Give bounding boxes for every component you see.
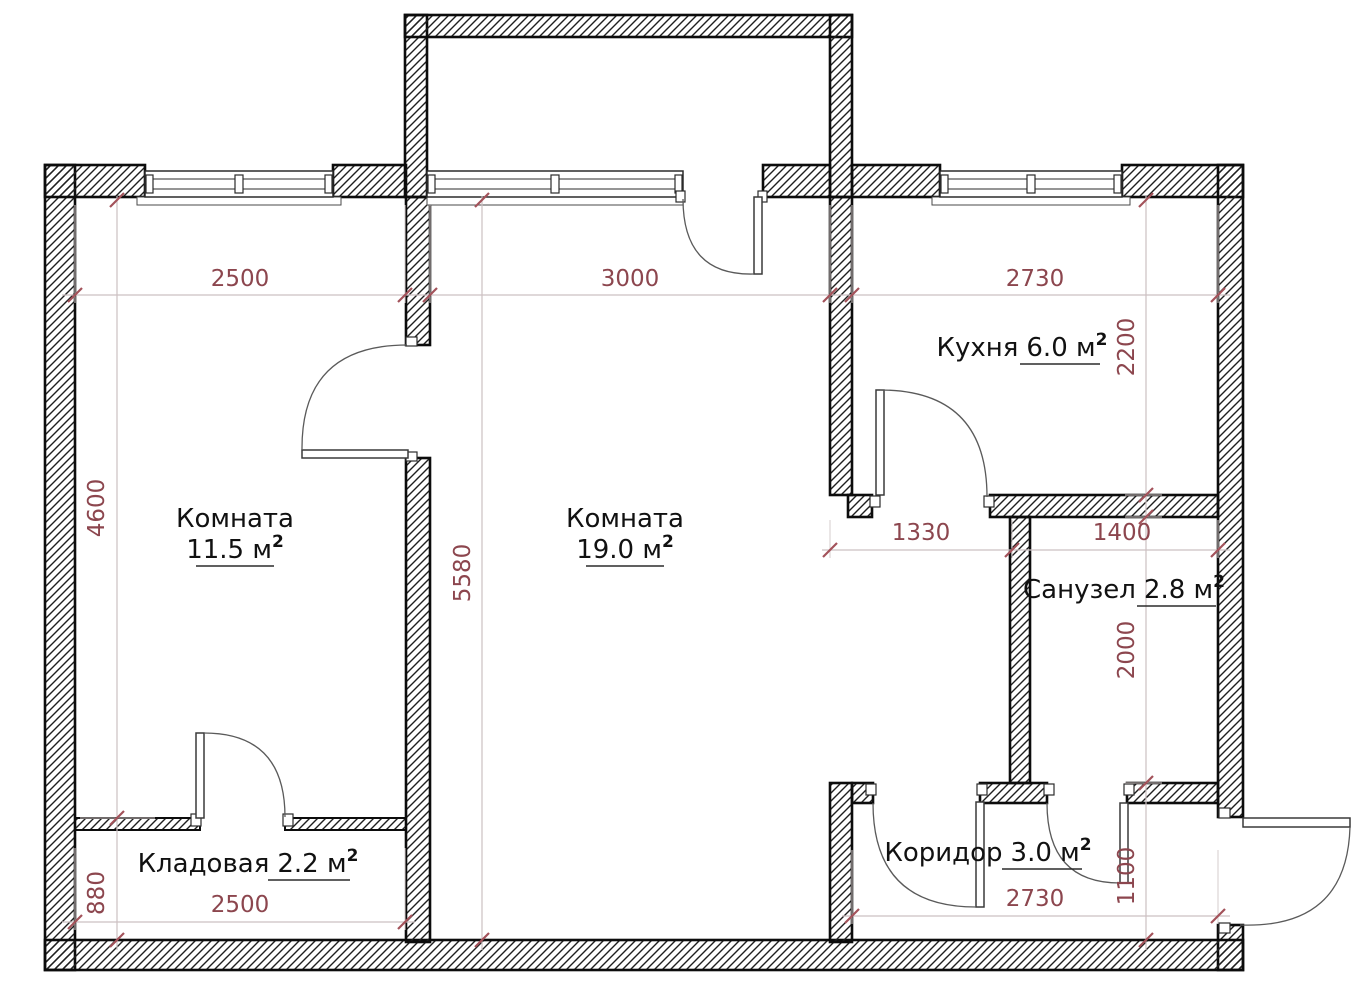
bathroom-label: Санузел2.8 м2 [1023,572,1225,605]
dim-storage-height: 880 [84,871,110,915]
kitchen-label: Кухня6.0 м2 [937,330,1108,363]
room2-area: 19.0 м2 [576,532,674,565]
dim-corridor-width: 2730 [1006,886,1065,912]
wall-outer-left [45,165,75,970]
dim-kitchen-width: 2730 [1006,266,1065,292]
wall-bathroom-left [1010,517,1030,783]
dimension-ticks [68,193,1225,947]
floor-plan-page: 2500 3000 2730 4600 5580 2200 1330 1400 … [0,0,1369,1000]
room2-name: Комната [566,504,684,534]
dim-room2-height: 5580 [450,544,476,603]
wall-outer-top-c [763,165,830,197]
dim-corridor-height: 1100 [1114,847,1140,906]
door-storage [191,733,293,826]
corridor-label: Коридор3.0 м2 [884,835,1091,868]
window-balcony [427,171,683,205]
door-balcony [676,191,767,274]
dim-room2-width: 3000 [601,266,660,292]
dim-storage-width: 2500 [211,892,270,918]
window-kitchen [932,171,1130,205]
extension-lines [75,205,1218,930]
dim-passage-width: 1330 [892,520,951,546]
floor-plan-svg: 2500 3000 2730 4600 5580 2200 1330 1400 … [0,0,1369,1000]
walls-layer [45,15,1243,970]
dimension-texts: 2500 3000 2730 4600 5580 2200 1330 1400 … [84,266,1151,918]
room1-area: 11.5 м2 [186,532,284,565]
dim-bathroom-height: 2000 [1114,621,1140,680]
storage-label: Кладовая2.2 м2 [138,846,359,879]
room-labels: Комната 11.5 м2 Комната 19.0 м2 Кухня6.0… [138,330,1225,880]
wall-balcony-top [405,15,852,37]
wall-bathroom-bottom-right [1127,783,1218,803]
dimension-lines [62,196,1230,950]
wall-storage-top-b [285,818,406,830]
door-kitchen [870,390,994,507]
dim-kitchen-height: 2200 [1114,318,1140,377]
wall-outer-top-d [852,165,940,197]
wall-divider-upper [406,197,430,345]
wall-kitchen-divider [830,197,852,495]
wall-outer-right-upper [1218,165,1243,817]
wall-balcony-right [830,15,852,197]
wall-outer-bottom [45,940,1243,970]
dim-room1-height: 4600 [84,479,110,538]
room1-name: Комната [176,504,294,534]
wall-balcony-left [405,15,427,197]
dim-room1-width: 2500 [211,266,270,292]
dim-bathroom-width: 1400 [1093,520,1152,546]
wall-storage-top-a [75,818,200,830]
wall-divider-lower [406,458,430,942]
wall-kitchen-notch [848,495,872,517]
wall-outer-top-b [333,165,406,197]
wall-corridor-top-mid [980,783,1047,803]
door-room1 [302,337,417,461]
wall-outer-top-a [45,165,145,197]
door-entrance [1219,808,1350,933]
wall-kitchen-bathroom [990,495,1218,517]
window-room1 [137,171,341,205]
